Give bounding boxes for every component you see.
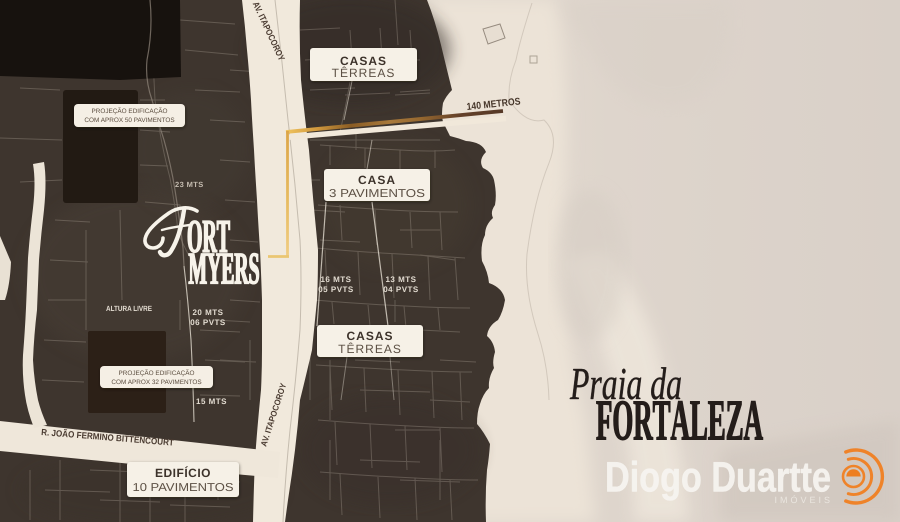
- svg-text:EDIFÍCIO: EDIFÍCIO: [155, 466, 211, 480]
- svg-text:PROJEÇÃO EDIFICAÇÃO: PROJEÇÃO EDIFICAÇÃO: [92, 107, 168, 115]
- svg-text:TÊRREAS: TÊRREAS: [338, 342, 402, 356]
- svg-text:IMÓVEIS: IMÓVEIS: [774, 495, 833, 505]
- svg-text:06 PVTS: 06 PVTS: [190, 318, 226, 327]
- svg-text:13 MTS: 13 MTS: [385, 275, 416, 284]
- svg-text:CASA: CASA: [358, 173, 396, 187]
- svg-text:PROJEÇÃO EDIFICAÇÃO: PROJEÇÃO EDIFICAÇÃO: [119, 369, 195, 377]
- svg-text:23 MTS: 23 MTS: [175, 180, 204, 189]
- svg-text:20 MTS: 20 MTS: [192, 308, 223, 317]
- svg-text:16 MTS: 16 MTS: [320, 275, 351, 284]
- svg-text:15 MTS: 15 MTS: [196, 397, 227, 406]
- svg-text:05 PVTS: 05 PVTS: [318, 285, 354, 294]
- svg-text:3 PAVIMENTOS: 3 PAVIMENTOS: [329, 188, 425, 200]
- svg-text:COM APROX 50 PAVIMENTOS: COM APROX 50 PAVIMENTOS: [84, 117, 174, 124]
- svg-text:COM APROX 32 PAVIMENTOS: COM APROX 32 PAVIMENTOS: [111, 379, 201, 386]
- svg-text:04 PVTS: 04 PVTS: [383, 285, 419, 294]
- svg-text:CASAS: CASAS: [346, 329, 393, 343]
- svg-text:10 PAVIMENTOS: 10 PAVIMENTOS: [133, 482, 234, 494]
- svg-text:TÊRREAS: TÊRREAS: [332, 66, 396, 80]
- svg-text:ALTURA LIVRE: ALTURA LIVRE: [106, 304, 152, 313]
